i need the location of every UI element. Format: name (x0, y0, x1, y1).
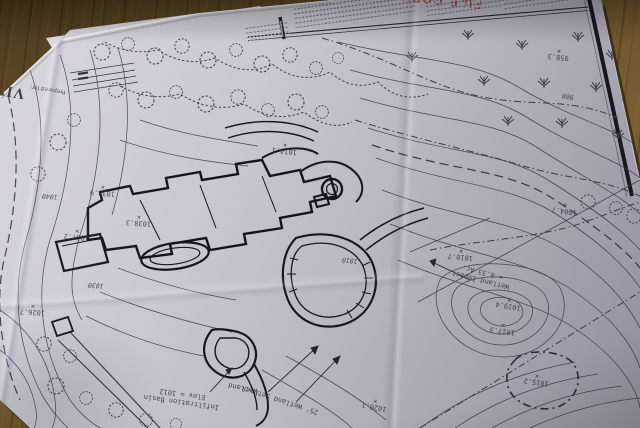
paper-corner-shadow (0, 0, 640, 428)
site-plan-sheet: 958.3×1004.7×1010.7×1014.1×1019.4×1017.3… (0, 0, 640, 428)
photo-of-site-plan: 958.3×1004.7×1010.7×1014.1×1019.4×1017.3… (0, 0, 640, 428)
